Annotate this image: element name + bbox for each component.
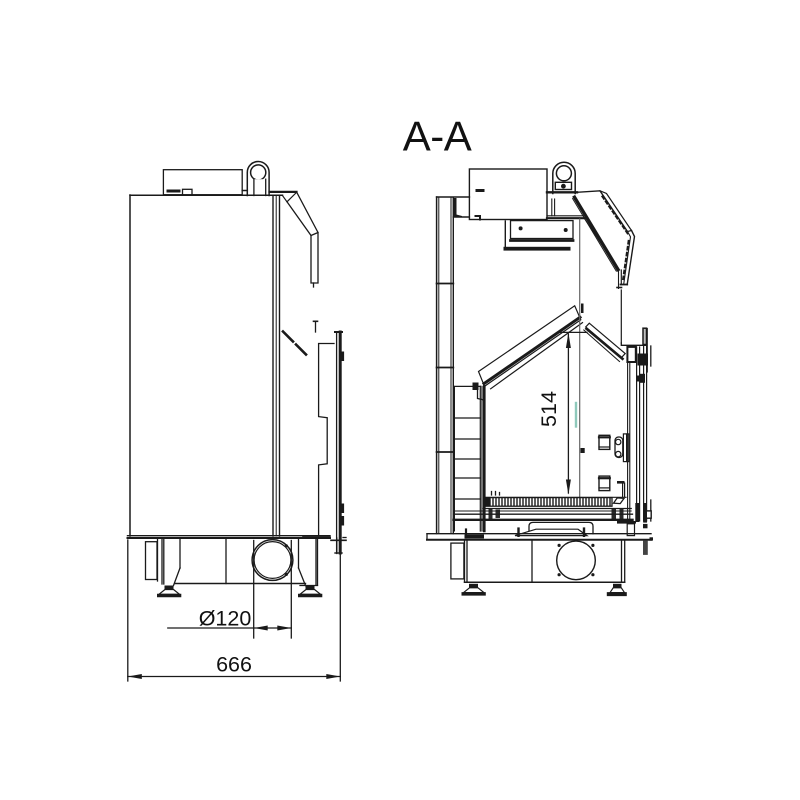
svg-text:666: 666 [216,653,252,677]
svg-text:Ø120: Ø120 [199,607,252,631]
svg-text:A-A: A-A [403,113,472,160]
svg-text:514: 514 [537,391,561,427]
